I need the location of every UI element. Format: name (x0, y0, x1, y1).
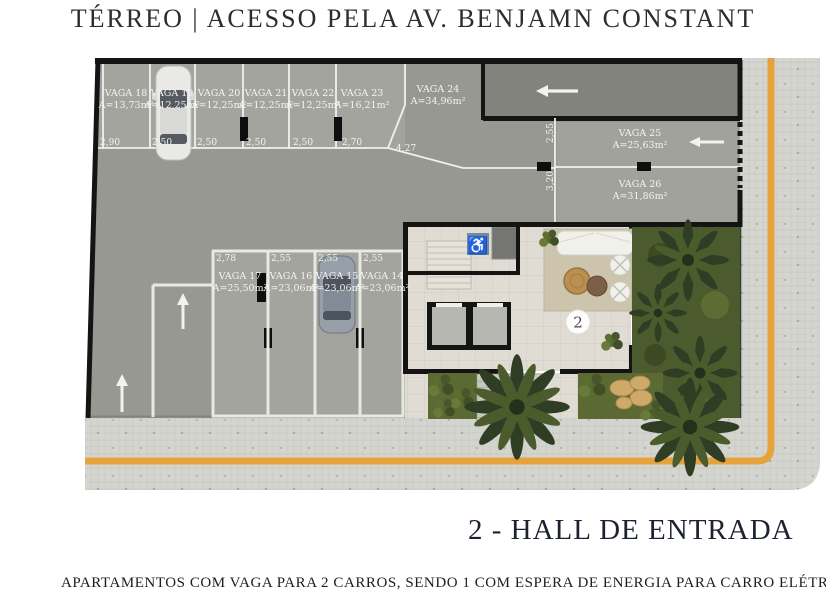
vaga-26-name: VAGA 26 (618, 179, 662, 190)
vaga-22-area: A=12,25m² (285, 100, 341, 111)
side-table (587, 276, 607, 296)
vaga-14-area: A=23,06m² (354, 283, 410, 294)
wheelchair-icon: ♿ (467, 235, 488, 256)
hall-marker: 2 (566, 310, 590, 334)
sofa (557, 231, 633, 255)
vaga-18-name: VAGA 18 (104, 88, 148, 99)
elevators (427, 302, 511, 350)
vaga-23-dim: 2,70 (342, 138, 362, 148)
vaga-25-name: VAGA 25 (618, 128, 662, 139)
vaga-16-dim: 2,55 (271, 254, 291, 264)
vaga-19-dim: 2,50 (152, 138, 172, 148)
footer-note: APARTAMENTOS COM VAGA PARA 2 CARROS, SEN… (50, 567, 820, 599)
palm-tree-icon (629, 284, 687, 342)
landscape-rocks (610, 376, 652, 409)
vaga-23-area: A=16,21m² (334, 100, 390, 111)
vaga-15-name: VAGA 15 (315, 271, 359, 282)
hall-legend: 2 - HALL DE ENTRADA (468, 514, 794, 547)
coffee-table (564, 268, 590, 294)
vaga-21-name: VAGA 21 (244, 88, 288, 99)
palm-tree-icon (641, 378, 740, 477)
vaga-25-dim: 2,55 (546, 123, 556, 143)
vaga-24-dim: 4,27 (396, 144, 416, 154)
palm-tree-icon (464, 354, 569, 459)
floor-plan-svg: ♿ (0, 55, 826, 500)
vaga-14-dim: 2,55 (363, 254, 383, 264)
vaga-17-dim: 2,78 (216, 254, 236, 264)
page-title: TÉRREO | ACESSO PELA AV. BENJAMN CONSTAN… (0, 4, 826, 34)
car-silver (315, 256, 359, 333)
vaga-24-name: VAGA 24 (416, 84, 460, 95)
vaga-17-area: A=25,50m² (212, 283, 268, 294)
vaga-15-dim: 2,55 (318, 254, 338, 264)
hall-marker-number: 2 (573, 314, 583, 332)
vaga-22-dim: 2,50 (293, 138, 313, 148)
vaga-14-name: VAGA 14 (360, 271, 404, 282)
vaga-24-area: A=34,96m² (410, 96, 466, 107)
platform-lift (492, 227, 518, 259)
vaga-18-dim: 2,90 (100, 138, 120, 148)
elevator-1 (432, 307, 466, 345)
vaga-23-name: VAGA 23 (340, 88, 384, 99)
vaga-26-area: A=31,86m² (612, 191, 668, 202)
vaga-17-name: VAGA 17 (218, 271, 262, 282)
stairs (427, 241, 471, 289)
vaga-25-area: A=25,63m² (612, 140, 668, 151)
elevator-2 (473, 307, 507, 345)
vaga-20-dim: 2,50 (197, 138, 217, 148)
vaga-16-name: VAGA 16 (269, 271, 313, 282)
vaga-26-dim: 3,20 (546, 171, 556, 191)
vaga-22-name: VAGA 22 (291, 88, 335, 99)
vaga-21-dim: 2,50 (246, 138, 266, 148)
driveway-lane (481, 63, 740, 121)
vaga-20-name: VAGA 20 (197, 88, 241, 99)
vaga-19-name: VAGA 19 (150, 88, 194, 99)
note-text: APARTAMENTOS COM VAGA PARA 2 CARROS, SEN… (61, 575, 826, 592)
